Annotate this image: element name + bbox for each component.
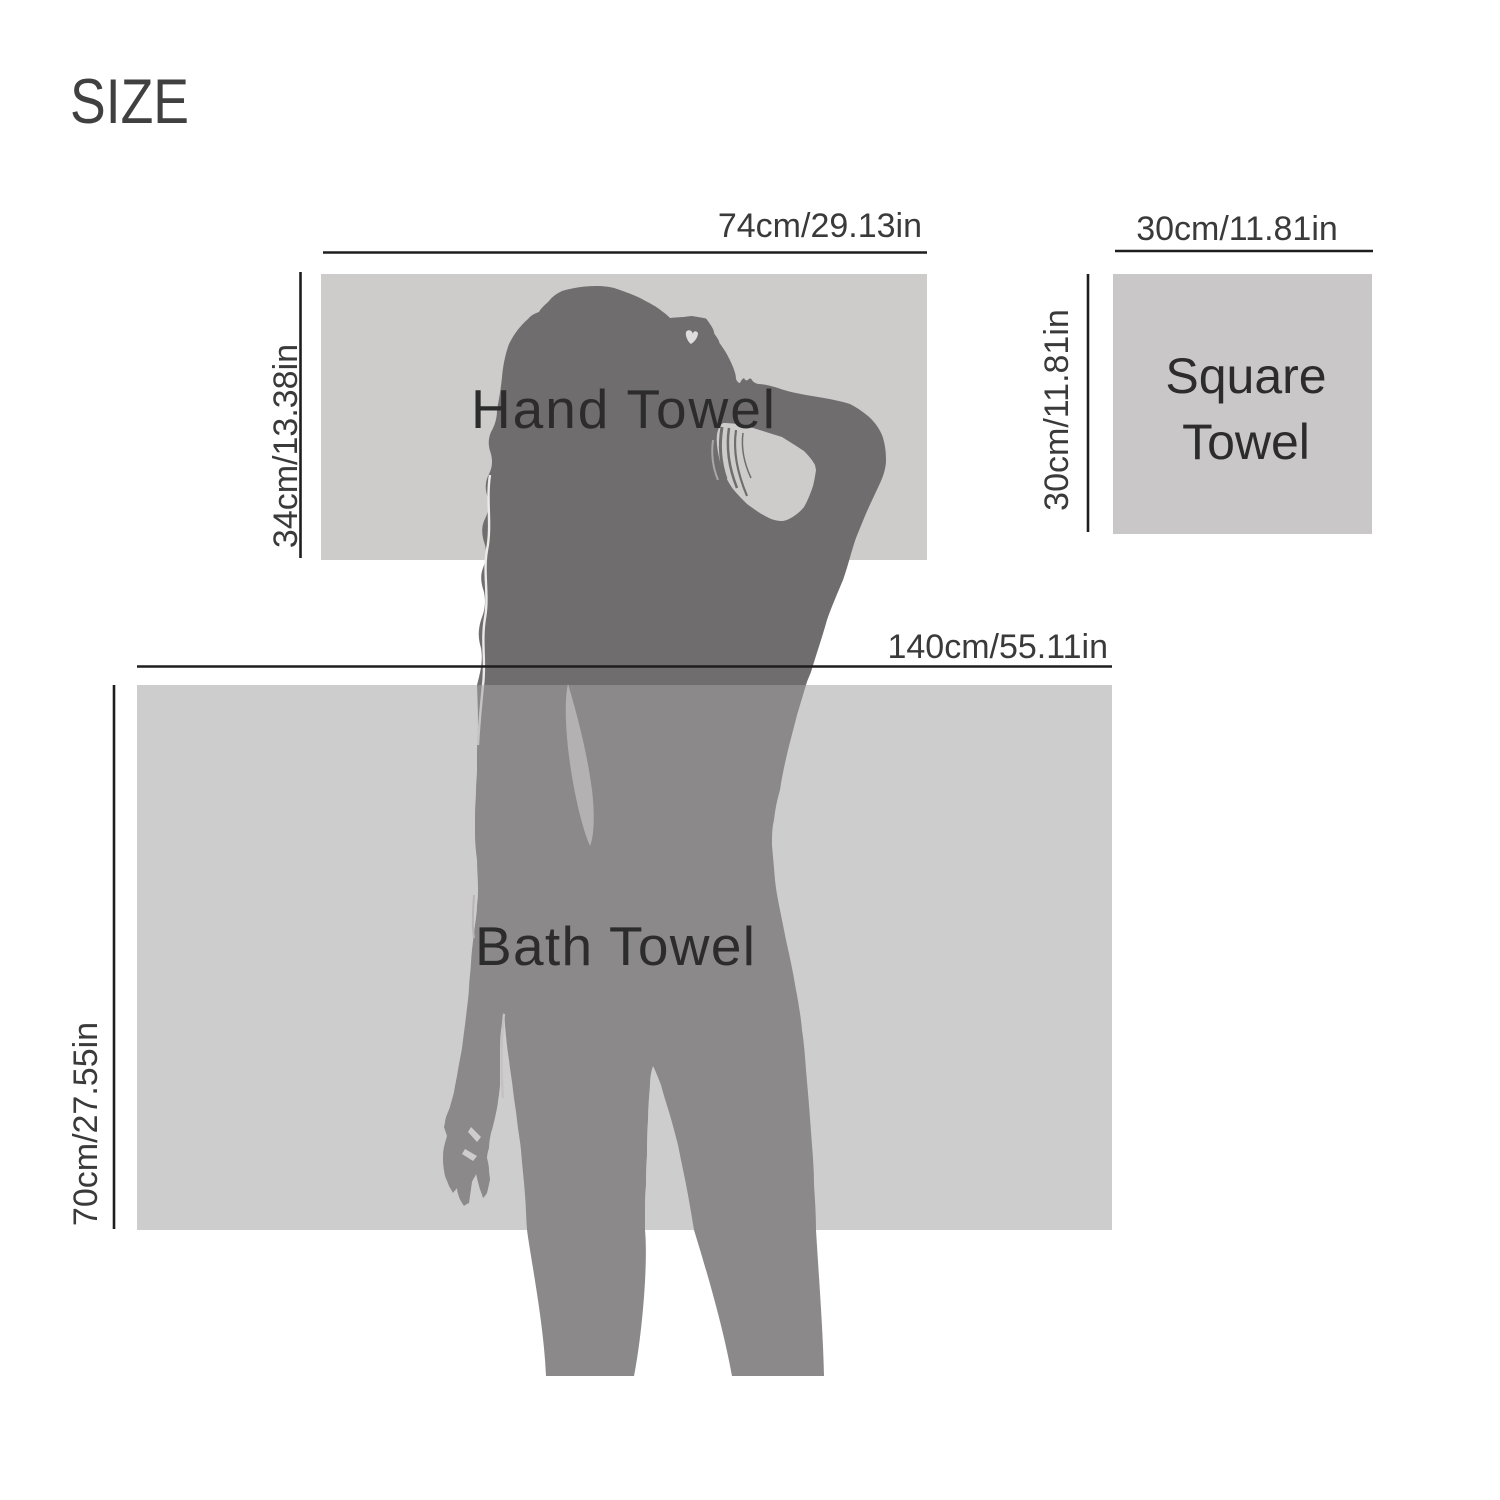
svg-text:Bath Towel: Bath Towel [475,915,755,977]
svg-text:70cm/27.55in: 70cm/27.55in [67,1022,105,1226]
svg-text:Square: Square [1165,348,1326,404]
svg-text:Towel: Towel [1182,414,1310,470]
svg-text:34cm/13.38in: 34cm/13.38in [267,344,305,548]
svg-text:140cm/55.11in: 140cm/55.11in [887,628,1108,666]
svg-text:74cm/29.13in: 74cm/29.13in [718,207,922,245]
svg-text:SIZE: SIZE [70,67,189,137]
svg-text:30cm/11.81in: 30cm/11.81in [1136,210,1338,248]
svg-text:Hand Towel: Hand Towel [471,378,775,440]
svg-text:30cm/11.81in: 30cm/11.81in [1038,309,1076,511]
